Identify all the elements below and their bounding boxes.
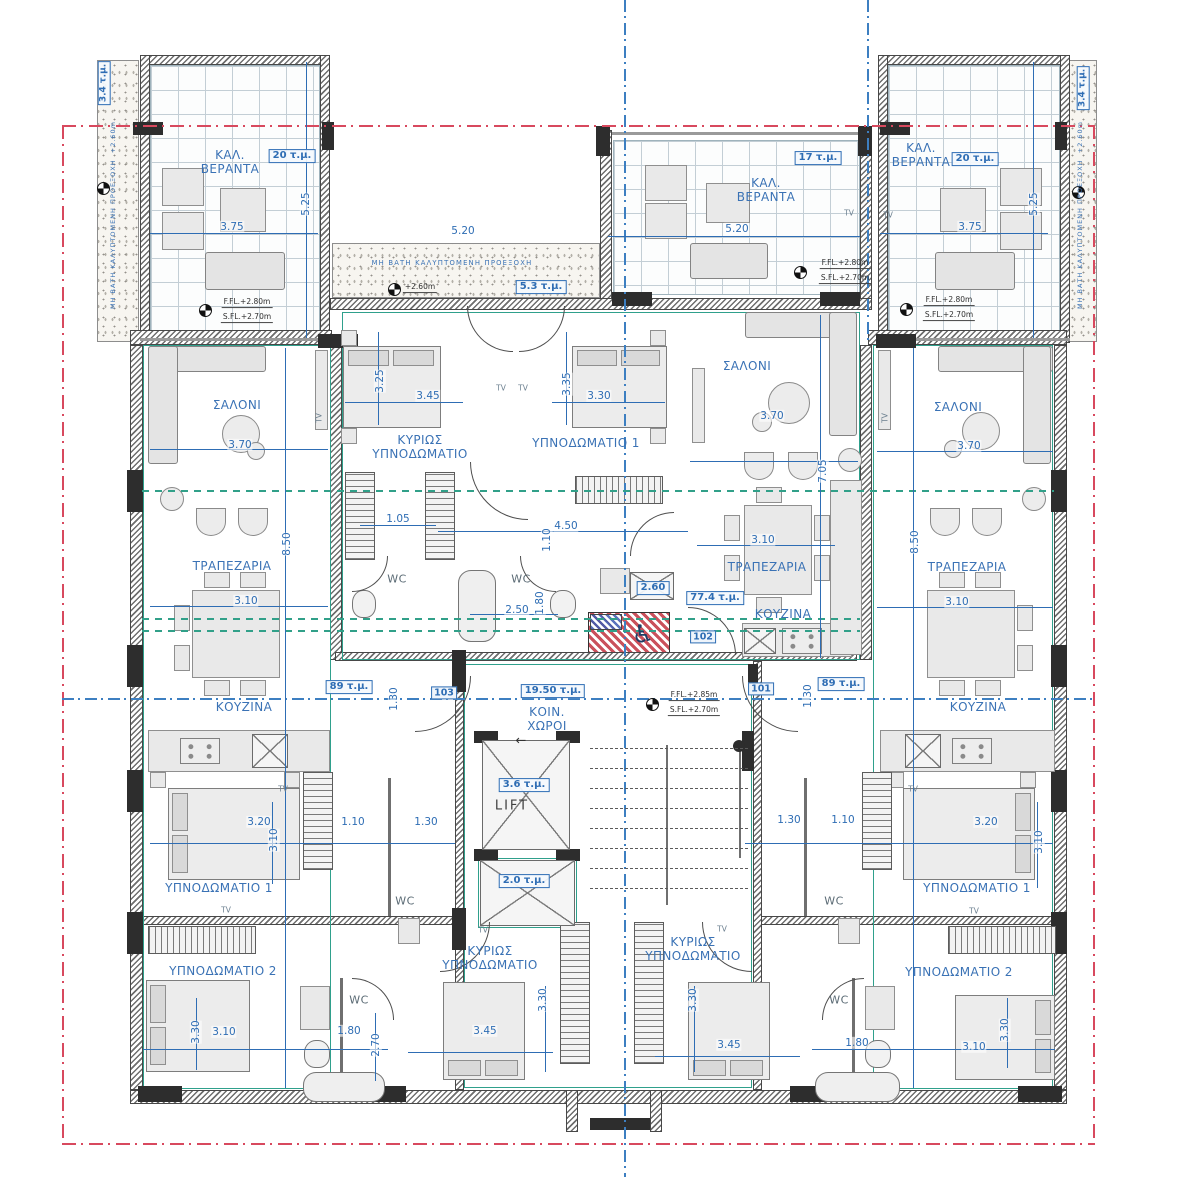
- furn: [939, 572, 965, 588]
- apt101-bedroom2: ΥΠΝΟΔΩΜΑΤΙΟ 2: [905, 965, 1013, 979]
- furn: [398, 918, 420, 944]
- strip-top-area: 5.3 τ.μ.: [516, 280, 567, 294]
- bed-102-master: [343, 346, 441, 428]
- wall: [650, 1090, 662, 1132]
- furn: [341, 428, 357, 444]
- core-title: ΚΟΙΝ. ΧΩΡΟΙ: [527, 705, 567, 733]
- col: [127, 912, 143, 954]
- furn: [1000, 212, 1042, 250]
- level-veranda-left-ffl: F.FL.+2.80m: [222, 298, 273, 308]
- xbox: [252, 734, 288, 768]
- line: [590, 848, 748, 850]
- apt102-salon: ΣΑΛΟΝΙ: [723, 359, 771, 373]
- bed-101-1: [903, 788, 1035, 880]
- line: [624, 0, 626, 1177]
- wall: [1054, 345, 1067, 1090]
- col: [1051, 770, 1067, 812]
- tub: [815, 1072, 900, 1102]
- strip-left-area: 3.4 τ.μ.: [98, 61, 111, 105]
- dim-apt101-bed1-w: 3.20: [973, 816, 998, 828]
- col: [127, 770, 143, 812]
- apt102-wc1: WC: [387, 574, 407, 587]
- line: [590, 788, 748, 790]
- dim-apt103-salon: 3.70: [227, 439, 252, 451]
- line: [690, 461, 858, 462]
- wall: [320, 55, 330, 343]
- dim-apt102-master-h: 3.25: [374, 369, 386, 392]
- apt102-kitchen: ΚΟΥΖΙΝΑ: [755, 607, 811, 621]
- col: [596, 126, 610, 156]
- wall: [130, 1090, 1067, 1104]
- strip-top-level: +2.60m: [403, 283, 437, 293]
- line: [590, 808, 748, 810]
- wardh: [148, 926, 256, 954]
- strip-right-note: ΜΗ ΒΑΤΗ ΚΑΛΥΠΤΟΜΕΝΗ ΠΡΟΕΞΟΧΗ +2.60m: [1077, 121, 1085, 309]
- circ: [838, 448, 862, 472]
- sofa: [1023, 346, 1051, 464]
- strip-top-note: ΜΗ ΒΑΤΗ ΚΑΛΥΠΤΟΜΕΝΗ ΠΡΟΕΞΟΧΗ: [372, 259, 533, 267]
- half: [238, 508, 268, 536]
- dim-apt101-130v: 1.30: [802, 684, 814, 707]
- core-ffl: F.FL.+2.85m: [669, 691, 720, 701]
- dim-apt103-bed1-h: 3.10: [268, 828, 280, 851]
- tv-apt101-bed1: TV: [908, 786, 918, 795]
- dim-veranda-right-w: 3.75: [957, 221, 982, 233]
- line: [408, 1052, 553, 1053]
- half: [744, 452, 774, 480]
- sofa: [690, 243, 768, 279]
- bed-pillow: [448, 1060, 481, 1076]
- dim-masterB-right-h: 3.30: [687, 988, 699, 1011]
- apt101-bedroom1: ΥΠΝΟΔΩΜΑΤΙΟ 1: [923, 881, 1031, 895]
- level-veranda-right-ffl: F.FL.+2.80m: [924, 296, 975, 306]
- colc: [733, 740, 745, 752]
- dim-apt102-705: 7.05: [817, 459, 829, 482]
- bed-pillow: [1035, 1039, 1051, 1074]
- dim-apt101-bed1-h: 3.10: [1033, 830, 1045, 853]
- level-veranda-mid-sfl: S.FL.+2.70m: [819, 274, 871, 284]
- tub: [303, 1072, 385, 1102]
- line: [62, 125, 1095, 127]
- bed-pillow: [577, 350, 617, 366]
- dim-apt103-180: 1.80: [336, 1025, 361, 1037]
- dim-apt102-110: 1.10: [541, 528, 553, 551]
- col: [612, 292, 652, 306]
- level-marker-icon: [900, 303, 913, 316]
- dim-apt102-bed1-h: 3.35: [561, 372, 573, 395]
- bed-102-1: [572, 346, 667, 428]
- veranda-right-title: ΚΑΛ. ΒΕΡΑΝΤΑ: [892, 141, 951, 169]
- line: [820, 315, 821, 658]
- veranda-left-area: 20 τ.μ.: [269, 149, 316, 163]
- apt102-master: ΚΥΡΙΩΣ ΥΠΝΟΔΩΜΑΤΙΟ: [372, 433, 467, 461]
- bed-pillow: [150, 1027, 166, 1065]
- dim-apt103-bed2-w: 3.10: [211, 1026, 236, 1038]
- apt103-kitchen: ΚΟΥΖΙΝΑ: [216, 700, 272, 714]
- apt102-260: 2.60: [637, 581, 670, 595]
- dim-veranda-left-h: 5.25: [300, 192, 312, 215]
- dim-apt102-105: 1.05: [385, 513, 410, 525]
- dim-apt102-180: 1.80: [534, 591, 546, 614]
- dim-apt103-dining: 3.10: [233, 595, 258, 607]
- apt101-dining: ΤΡΑΠΕΖΑΡΙΑ: [928, 560, 1007, 574]
- dim-apt102-450: 4.50: [553, 520, 578, 532]
- dim-apt103-130: 1.30: [413, 816, 438, 828]
- dim-apt103-110: 1.10: [340, 816, 365, 828]
- furn: [1020, 772, 1036, 788]
- col: [858, 126, 872, 156]
- col: [742, 731, 754, 771]
- shaft-area: 2.0 τ.μ.: [499, 874, 550, 888]
- wardv: [425, 472, 455, 560]
- sofa: [829, 312, 857, 436]
- half: [972, 508, 1002, 536]
- line: [745, 843, 1053, 844]
- shaft-box: [480, 860, 575, 926]
- apt103-area: 89 τ.μ.: [326, 680, 373, 694]
- furn: [939, 680, 965, 696]
- level-marker-icon: [97, 182, 110, 195]
- floor-plan-canvas: ΚΑΛ. ΒΕΡΑΝΤΑ20 τ.μ.3.755.25F.FL.+2.80mS.…: [0, 0, 1200, 1177]
- apt103-wc2: WC: [349, 995, 369, 1008]
- apt102-wc2: WC: [511, 574, 531, 587]
- bed-pillow: [172, 835, 188, 873]
- furn: [645, 165, 687, 201]
- apt101-wc2: WC: [829, 995, 849, 1008]
- half: [196, 508, 226, 536]
- toilet: [352, 590, 376, 618]
- level-veranda-right-sfl: S.FL.+2.70m: [923, 311, 975, 321]
- furn: [300, 986, 330, 1030]
- furn: [838, 918, 860, 944]
- col: [127, 645, 143, 687]
- hob: [180, 738, 220, 764]
- accessible-icon: ♿: [632, 619, 654, 649]
- dim-veranda-left-w: 3.75: [219, 221, 244, 233]
- apt101-area: 89 τ.μ.: [818, 677, 865, 691]
- col: [138, 1086, 182, 1102]
- dim-veranda-right-h: 5.25: [1028, 192, 1040, 215]
- dim-apt101-180: 1.80: [844, 1037, 869, 1049]
- furn: [174, 645, 190, 671]
- dim-apt101-110: 1.10: [830, 814, 855, 826]
- apt102-area: 77.4 τ.μ.: [686, 591, 744, 605]
- apt103-salon: ΣΑΛΟΝΙ: [213, 398, 261, 412]
- line: [608, 236, 860, 237]
- line: [590, 748, 748, 750]
- veranda-right-area: 20 τ.μ.: [952, 152, 999, 166]
- bed-103-1: [168, 788, 300, 880]
- line: [62, 1143, 1095, 1145]
- apt101-salon: ΣΑΛΟΝΙ: [934, 400, 982, 414]
- col: [876, 334, 916, 348]
- wall: [130, 345, 143, 1090]
- dining-table-102: [744, 505, 812, 595]
- bed-masterB-right: [688, 982, 770, 1080]
- dim-masterB-left-w: 3.45: [472, 1025, 497, 1037]
- line: [590, 888, 748, 890]
- line: [590, 828, 748, 830]
- dim-veranda-mid-w: 5.20: [724, 223, 749, 235]
- dim-masterB-right-w: 3.45: [716, 1039, 741, 1051]
- furn: [1017, 605, 1033, 631]
- core-arrow: ←: [516, 733, 527, 748]
- tv-apt103-bed2: TV: [221, 907, 231, 916]
- bed-pillow: [1035, 1000, 1051, 1035]
- core-sfl: S.FL.+2.70m: [668, 706, 720, 716]
- wall: [140, 55, 330, 65]
- dim-strip-top: 5.20: [450, 225, 475, 237]
- kitchen-tall-102: [830, 480, 862, 655]
- bed-pillow: [393, 350, 434, 366]
- apt102-masterB-left: ΚΥΡΙΩΣ ΥΠΝΟΔΩΜΑΤΙΟ: [442, 944, 537, 972]
- line: [590, 768, 748, 770]
- dim-apt102-dining: 3.10: [750, 534, 775, 546]
- rail: [612, 132, 860, 135]
- tv-unit-102: [692, 368, 705, 443]
- level-veranda-mid-ffl: F.FL.+2.80m: [820, 259, 871, 269]
- dim-apt101-bed2-w: 3.10: [961, 1041, 986, 1053]
- veranda-mid-area: 17 τ.μ.: [795, 151, 842, 165]
- wardv: [303, 772, 333, 870]
- furn: [240, 680, 266, 696]
- furn: [1017, 645, 1033, 671]
- hob: [952, 738, 992, 764]
- line: [345, 402, 463, 403]
- dim-apt102-250: 2.50: [504, 604, 529, 616]
- furn: [650, 428, 666, 444]
- furn: [724, 515, 740, 541]
- level-veranda-left-sfl: S.FL.+2.70m: [221, 313, 273, 323]
- dim-apt102-salon: 3.70: [759, 410, 784, 422]
- furn: [975, 572, 1001, 588]
- sofa: [205, 252, 285, 290]
- line: [590, 868, 748, 870]
- apt103-bedroom2: ΥΠΝΟΔΩΜΑΤΙΟ 2: [169, 964, 277, 978]
- dim-apt103-bed1-w: 3.20: [246, 816, 271, 828]
- apt102-number: 102: [690, 630, 716, 643]
- apt103-dining: ΤΡΑΠΕΖΑΡΙΑ: [193, 559, 272, 573]
- sofa: [148, 346, 178, 464]
- line: [142, 630, 860, 632]
- line: [655, 1056, 800, 1057]
- bed-pillow: [621, 350, 661, 366]
- wall: [330, 345, 342, 660]
- wall: [1060, 55, 1070, 343]
- tv-apt101-bed2: TV: [969, 908, 979, 917]
- apt103-number: 103: [431, 686, 457, 699]
- col: [133, 122, 163, 135]
- col: [880, 122, 910, 135]
- dim-apt101-dining: 3.10: [944, 596, 969, 608]
- apt101-kitchen: ΚΟΥΖΙΝΑ: [950, 700, 1006, 714]
- furn: [975, 680, 1001, 696]
- veranda-left-title: ΚΑΛ. ΒΕΡΑΝΤΑ: [201, 148, 260, 176]
- wall: [878, 55, 888, 343]
- dim-apt103-height: 8.50: [281, 532, 293, 555]
- line: [142, 490, 1054, 492]
- dim-apt103-270: 2.70: [370, 1033, 382, 1056]
- half: [788, 452, 818, 480]
- col: [1018, 1086, 1062, 1102]
- col: [820, 292, 860, 306]
- toilet: [304, 1040, 330, 1068]
- apt101-number: 101: [748, 682, 774, 695]
- line: [150, 843, 455, 844]
- col: [590, 1118, 650, 1130]
- apt101-wc1: WC: [824, 896, 844, 909]
- tv-apt102-2: TV: [518, 385, 528, 394]
- bed-pillow: [1015, 835, 1031, 873]
- furn: [814, 555, 830, 581]
- furn: [240, 572, 266, 588]
- furn: [162, 168, 204, 206]
- line: [867, 0, 869, 345]
- level-marker-icon: [388, 283, 401, 296]
- dim-masterB-left-h: 3.30: [537, 988, 549, 1011]
- furn: [341, 330, 357, 346]
- wardh: [948, 926, 1056, 954]
- part: [804, 778, 807, 916]
- apt101-masterB-right: ΚΥΡΙΩΣ ΥΠΝΟΔΩΜΑΤΙΟ: [645, 935, 740, 963]
- bed-pillow: [150, 985, 166, 1023]
- furn: [204, 680, 230, 696]
- wardv: [345, 472, 375, 560]
- wardv: [560, 922, 590, 1064]
- line: [285, 348, 286, 1088]
- core-area: 19.50 τ.μ.: [521, 684, 585, 698]
- xbox: [905, 734, 941, 768]
- dim-apt102-bed1-w: 3.30: [586, 390, 611, 402]
- furn: [645, 203, 687, 239]
- level-marker-icon: [794, 266, 807, 279]
- apt102-dining: ΤΡΑΠΕΖΑΡΙΑ: [728, 560, 807, 574]
- dim-apt101-height: 8.50: [909, 530, 921, 553]
- bed-pillow: [1015, 793, 1031, 831]
- strip-left-note: ΜΗ ΒΑΤΗ ΚΑΛΥΠΤΟΜΕΝΗ ΠΡΟΕΞΟΧΗ +2.60m: [110, 121, 118, 309]
- tv-veranda-mid-2: TV: [883, 212, 893, 221]
- furn: [204, 572, 230, 588]
- bed-pillow: [730, 1060, 763, 1076]
- wall: [878, 55, 1070, 65]
- bed-pillow: [485, 1060, 518, 1076]
- bed-pillow: [693, 1060, 726, 1076]
- sofa: [935, 252, 1015, 290]
- tv-masterB-right: TV: [717, 926, 727, 935]
- tv-masterB-left: TV: [478, 927, 488, 936]
- apt103-bedroom1: ΥΠΝΟΔΩΜΑΤΙΟ 1: [165, 881, 273, 895]
- dining-table-101: [927, 590, 1015, 678]
- bed-pillow: [172, 793, 188, 831]
- dim-apt101-bed2-h: 3.30: [999, 1018, 1011, 1041]
- line: [142, 618, 860, 620]
- tv-apt101-salon: TV: [882, 413, 891, 423]
- lift-cab: [482, 740, 570, 850]
- bed-pillow: [348, 350, 389, 366]
- tv-apt103-bed1: TV: [278, 786, 288, 795]
- apt103-wc1: WC: [395, 896, 415, 909]
- wardv: [862, 772, 892, 870]
- line: [1093, 125, 1095, 1145]
- lift-title: LIFT: [495, 798, 529, 813]
- dim-apt101-salon: 3.70: [956, 440, 981, 452]
- furn: [865, 986, 895, 1030]
- col: [1051, 645, 1067, 687]
- wall: [330, 298, 872, 310]
- furn: [650, 330, 666, 346]
- level-marker-icon: [199, 304, 212, 317]
- furn: [162, 212, 204, 250]
- wall: [566, 1090, 578, 1132]
- part: [388, 778, 391, 916]
- lift-area: 3.6 τ.μ.: [499, 778, 550, 792]
- furn: [814, 515, 830, 541]
- wall: [140, 55, 150, 343]
- dim-apt103-130v: 1.30: [388, 687, 400, 710]
- col: [127, 470, 143, 512]
- tv-apt103-salon: TV: [316, 413, 325, 423]
- level-marker-icon: [646, 698, 659, 711]
- line: [62, 125, 64, 1145]
- half: [930, 508, 960, 536]
- strip-right-area: 3.4 τ.μ.: [1077, 66, 1090, 110]
- dim-apt103-bed2-h: 3.30: [190, 1020, 202, 1043]
- tv-veranda-mid-1: TV: [844, 210, 854, 219]
- veranda-mid-title: ΚΑΛ. ΒΕΡΑΝΤΑ: [737, 176, 796, 204]
- line: [143, 1049, 388, 1050]
- rail: [140, 338, 330, 341]
- apt102-bedroom1: ΥΠΝΟΔΩΜΑΤΙΟ 1: [532, 436, 640, 450]
- dim-apt101-130: 1.30: [776, 814, 801, 826]
- kitchen-counter-103: [148, 730, 330, 772]
- tv-apt102-1: TV: [496, 385, 506, 394]
- dim-apt102-master-w: 3.45: [415, 390, 440, 402]
- furn: [150, 772, 166, 788]
